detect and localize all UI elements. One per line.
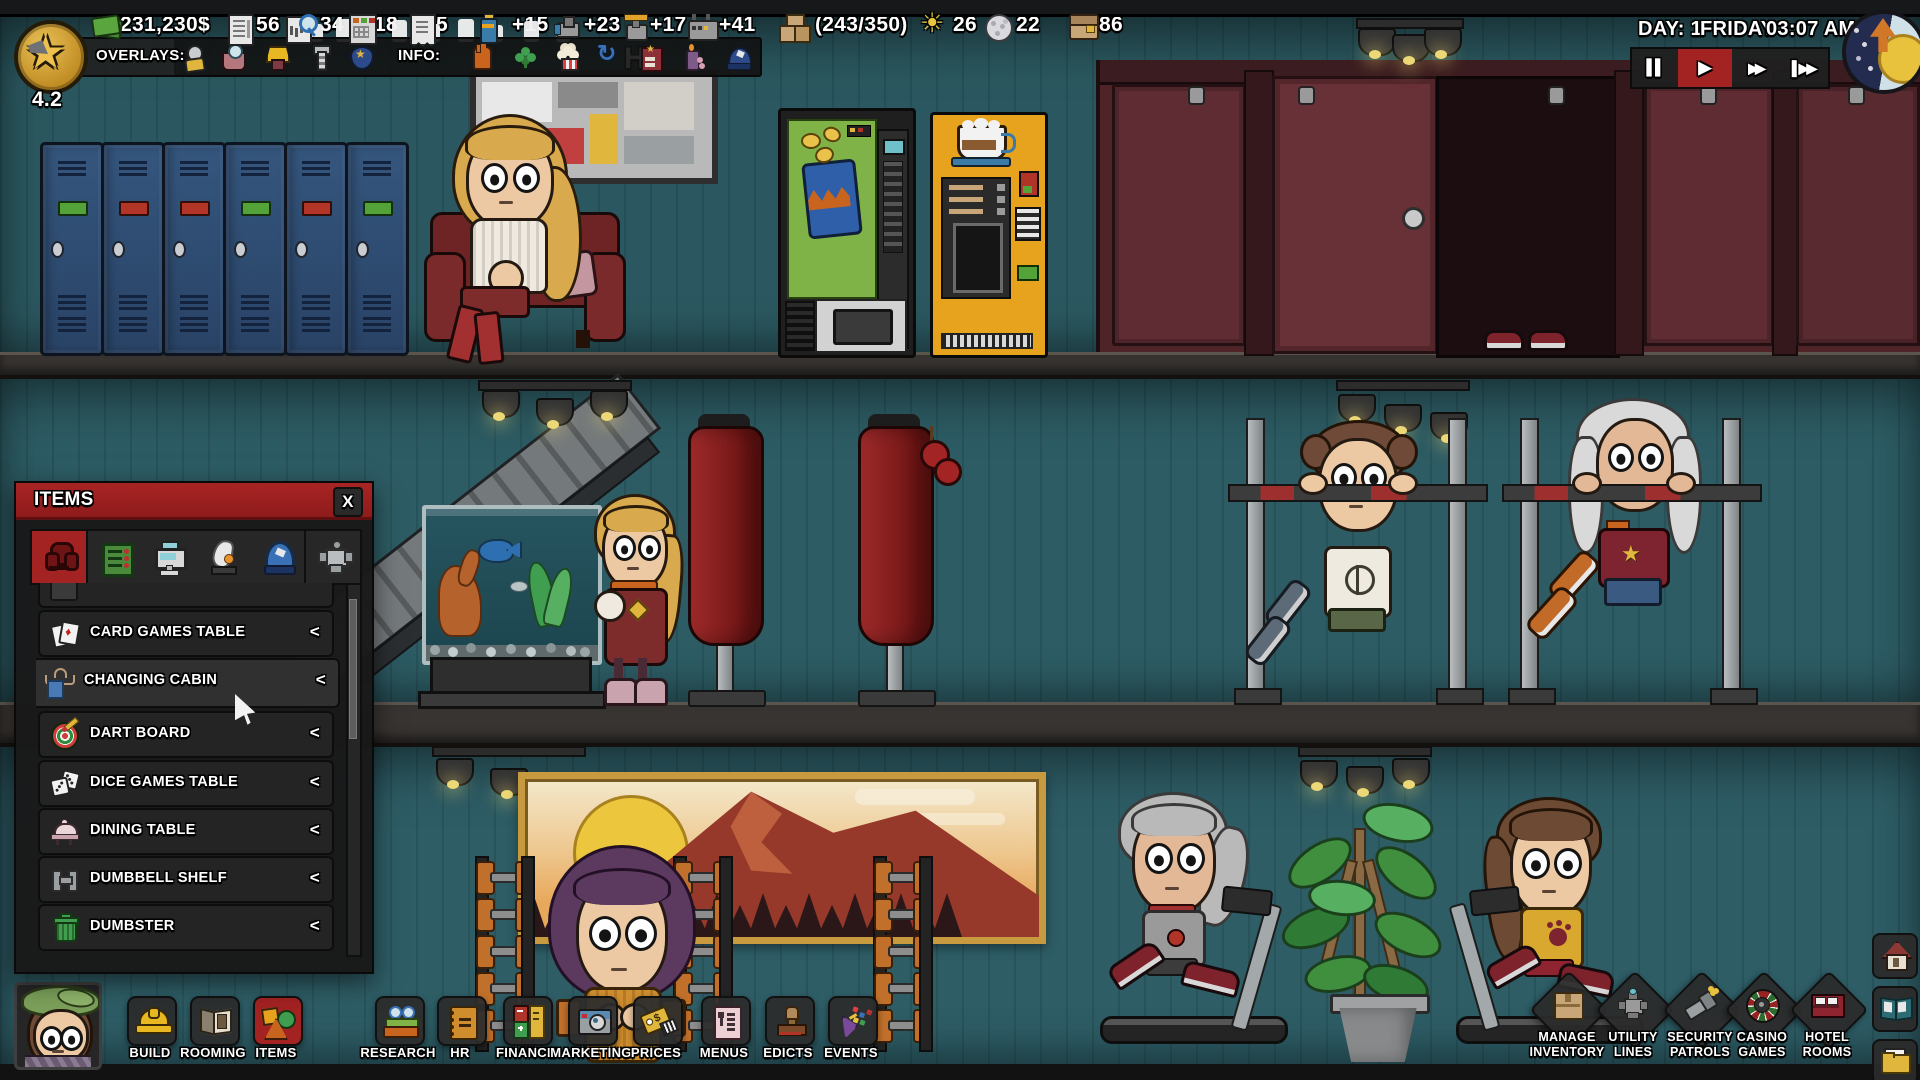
list-item-label: DUMBSTER <box>90 918 175 934</box>
stall-hook <box>1188 86 1205 105</box>
aquarium[interactable] <box>418 505 600 703</box>
locker-5[interactable] <box>284 142 348 356</box>
tab-registers[interactable] <box>142 531 196 583</box>
guest-pull-up-2[interactable]: ★ <box>1520 396 1760 656</box>
guide-book-icon <box>1880 996 1910 1020</box>
receipts-icon[interactable] <box>410 14 436 46</box>
furniture-tab-icon <box>45 542 73 572</box>
ledgers-icon <box>513 1005 543 1037</box>
speed-controls: ▌▌ ▶ ▶▶ ▌▶▶ <box>1630 47 1830 89</box>
list-item-label: CHANGING CABIN <box>84 672 217 688</box>
ceiling-lamps-f2a <box>478 372 628 452</box>
guest-feet-in-stall[interactable] <box>1484 328 1570 350</box>
hr-button[interactable] <box>437 996 487 1046</box>
maintenance-overlay-icon[interactable] <box>307 44 333 70</box>
scrollbar-track[interactable] <box>346 583 362 957</box>
ambience-info-icon[interactable] <box>680 44 706 70</box>
items-button[interactable] <box>253 996 303 1046</box>
bottom-strip <box>0 1064 1920 1080</box>
player-avatar[interactable] <box>14 982 102 1070</box>
locker-3[interactable] <box>162 142 226 356</box>
finance-button[interactable] <box>503 996 553 1046</box>
dumbster-icon <box>50 913 78 941</box>
inventory-crate-icon <box>1550 988 1584 1022</box>
gas-icon[interactable] <box>622 14 648 40</box>
snack-vending-machine[interactable] <box>778 108 916 358</box>
expand-chevron[interactable]: < <box>310 723 320 743</box>
list-item-dining-table[interactable]: DINING TABLE < <box>38 808 334 855</box>
info-label: INFO: <box>398 47 440 64</box>
treadmill-2-console <box>1469 885 1521 916</box>
events-label: EVENTS <box>806 1045 896 1060</box>
ventilation-icon[interactable] <box>688 14 717 40</box>
items-panel-header: ITEMS X <box>16 483 372 520</box>
cash-icon <box>92 14 122 40</box>
items-panel-title: ITEMS <box>34 489 94 511</box>
ceiling-lamps-f1 <box>1356 14 1460 78</box>
overlays-label: OVERLAYS: <box>96 47 185 64</box>
tab-ambience[interactable] <box>196 531 250 583</box>
build-button[interactable] <box>127 996 177 1046</box>
guest-pull-up-1[interactable] <box>1236 420 1476 670</box>
day-night-dial[interactable] <box>1842 10 1920 94</box>
guest-overlay-icon[interactable] <box>180 44 206 70</box>
list-item-label: DICE GAMES TABLE <box>90 774 238 790</box>
clothing-tab-icon <box>264 541 292 573</box>
hotel-info-icon[interactable]: ★ <box>637 44 663 70</box>
dumbbell-shelf-icon <box>50 865 78 893</box>
stall-hook <box>1848 86 1865 105</box>
list-item-label: DUMBBELL SHELF <box>90 870 227 886</box>
ambience-tab-icon <box>209 540 237 574</box>
registers-tab-icon <box>153 541 185 573</box>
roulette-icon <box>1745 988 1779 1022</box>
accounting-icon[interactable] <box>349 14 377 45</box>
marketing-button[interactable] <box>568 996 618 1046</box>
pause-button[interactable]: ▌▌ <box>1632 49 1678 87</box>
contracts-icon[interactable] <box>228 14 254 46</box>
list-item-dumbster[interactable]: DUMBSTER < <box>38 904 334 951</box>
locker-6[interactable] <box>345 142 409 356</box>
guide-book-button[interactable] <box>1872 986 1918 1032</box>
research-points-icon[interactable] <box>286 14 316 42</box>
punching-bag-2[interactable] <box>850 414 970 704</box>
punching-bag-1[interactable] <box>680 414 770 704</box>
level-badge[interactable]: ★ <box>14 20 88 94</box>
expand-chevron[interactable]: < <box>310 916 320 936</box>
hotel-rooms-label: HOTELROOMS <box>1772 1030 1882 1060</box>
shapes-icon <box>262 1006 294 1036</box>
locker-4[interactable] <box>223 142 287 356</box>
tab-clothing[interactable] <box>250 531 304 583</box>
list-item-dumbbell-shelf[interactable]: DUMBBELL SHELF < <box>38 856 334 903</box>
coffee-vending-machine[interactable] <box>930 112 1048 358</box>
list-item-card-games-table[interactable]: ♦ CARD GAMES TABLE < <box>38 610 334 657</box>
items-tab-strip <box>30 529 362 585</box>
game-viewport: H <box>0 0 1920 1080</box>
list-item-dice-games-table[interactable]: DICE GAMES TABLE < <box>38 760 334 807</box>
list-item-partial[interactable] <box>38 583 334 608</box>
items-label: ITEMS <box>231 1045 321 1060</box>
documents-folder-icon <box>1881 1048 1909 1074</box>
expand-chevron[interactable]: < <box>310 868 320 888</box>
camera-icon <box>578 1009 612 1035</box>
hotel-bed-icon <box>1810 988 1844 1022</box>
clock-day: DAY: 1 <box>1638 18 1702 41</box>
events-button[interactable] <box>828 996 878 1046</box>
list-item-label: DART BOARD <box>90 725 190 741</box>
guest-pull-up-2-hands <box>1520 472 1760 492</box>
expand-chevron[interactable]: < <box>310 820 320 840</box>
locker-1[interactable] <box>40 142 104 356</box>
books-icon <box>383 1006 417 1036</box>
staff-info-icon[interactable] <box>725 44 751 70</box>
changing-cabin-icon <box>44 668 72 696</box>
items-panel: ITEMS X <box>14 481 374 974</box>
treadmill-1-deck[interactable] <box>1100 1016 1288 1044</box>
fastest-forward-button[interactable]: ▌▶▶ <box>1778 49 1828 87</box>
storage-crate-icon[interactable] <box>779 14 809 41</box>
card-games-icon: ♦ <box>50 619 78 647</box>
list-item-dart-board[interactable]: DART BOARD < <box>38 711 334 758</box>
cycle-info-icon[interactable]: ↻ <box>597 40 623 66</box>
notebook-icon <box>450 1006 478 1040</box>
stall-hook <box>1548 86 1565 105</box>
list-item-changing-cabin[interactable]: CHANGING CABIN < <box>36 658 340 708</box>
items-list: ♦ CARD GAMES TABLE < CHANGING CABIN < <box>36 583 352 953</box>
hardhat-icon <box>135 1007 169 1033</box>
guest-walking[interactable] <box>590 494 690 704</box>
play-button[interactable]: ▶ <box>1678 49 1732 87</box>
electronics-tab-icon <box>102 543 134 577</box>
guest-pull-up-1-hands <box>1236 472 1476 492</box>
stall-hook <box>1298 86 1315 105</box>
clock-time: 03:07 AM <box>1766 18 1855 41</box>
level-value: 4.2 <box>22 88 72 112</box>
list-item-label: DINING TABLE <box>90 822 196 838</box>
utility-valve-icon <box>1616 988 1650 1022</box>
edicts-button[interactable] <box>765 996 815 1046</box>
water-icon[interactable] <box>554 14 580 40</box>
scrollbar-thumb[interactable] <box>349 599 357 739</box>
tab-gadgets[interactable] <box>304 531 360 583</box>
gadgets-tab-icon <box>318 540 350 574</box>
flashlight-icon <box>1683 988 1717 1022</box>
menu-card-icon <box>714 1006 742 1040</box>
tab-furniture[interactable] <box>32 531 88 583</box>
stamp-icon <box>777 1006 803 1036</box>
rooming-button[interactable] <box>190 996 240 1046</box>
sun-guests-icon: ☀ <box>920 8 944 39</box>
price-tag-icon: $ <box>641 1008 675 1034</box>
party-popper-icon <box>837 1005 869 1037</box>
menus-button[interactable] <box>701 996 751 1046</box>
toilet-stalls[interactable] <box>1096 60 1920 352</box>
dart-board-icon <box>50 720 78 748</box>
list-item-label: CARD GAMES TABLE <box>90 624 245 640</box>
service-info-icon[interactable] <box>468 44 494 70</box>
wallet-icon <box>1069 14 1099 40</box>
home-icon <box>1881 941 1909 969</box>
locker-2[interactable] <box>101 142 165 356</box>
tab-electronics[interactable] <box>88 531 142 583</box>
security-overlay-icon[interactable]: ★ <box>347 44 373 70</box>
dumbbell-rack-3[interactable] <box>871 856 935 1048</box>
hygiene-overlay-icon[interactable] <box>220 44 246 70</box>
expand-chevron[interactable]: < <box>310 622 320 642</box>
fast-forward-button[interactable]: ▶▶ <box>1732 49 1778 87</box>
treadmill-1-console <box>1221 885 1273 916</box>
moon-guests-icon <box>985 14 1013 42</box>
research-button[interactable] <box>375 996 425 1046</box>
home-button[interactable] <box>1872 933 1918 979</box>
documents-folder-button[interactable] <box>1872 1039 1918 1080</box>
prices-button[interactable]: $ <box>633 996 683 1046</box>
clock-weekday: FRIDAY <box>1700 18 1774 41</box>
power-icon[interactable] <box>480 14 498 42</box>
close-button[interactable]: X <box>333 487 363 517</box>
expand-chevron[interactable]: < <box>316 670 326 690</box>
potted-plant[interactable] <box>1278 788 1448 1062</box>
luck-info-icon[interactable] <box>512 44 538 70</box>
dining-table-icon <box>50 817 78 845</box>
guest-on-sofa[interactable] <box>440 110 620 350</box>
comfort-overlay-icon[interactable] <box>263 44 289 70</box>
dice-games-icon <box>50 769 78 797</box>
expand-chevron[interactable]: < <box>310 772 320 792</box>
snacks-info-icon[interactable] <box>555 44 581 70</box>
room-box-icon <box>200 1006 230 1036</box>
